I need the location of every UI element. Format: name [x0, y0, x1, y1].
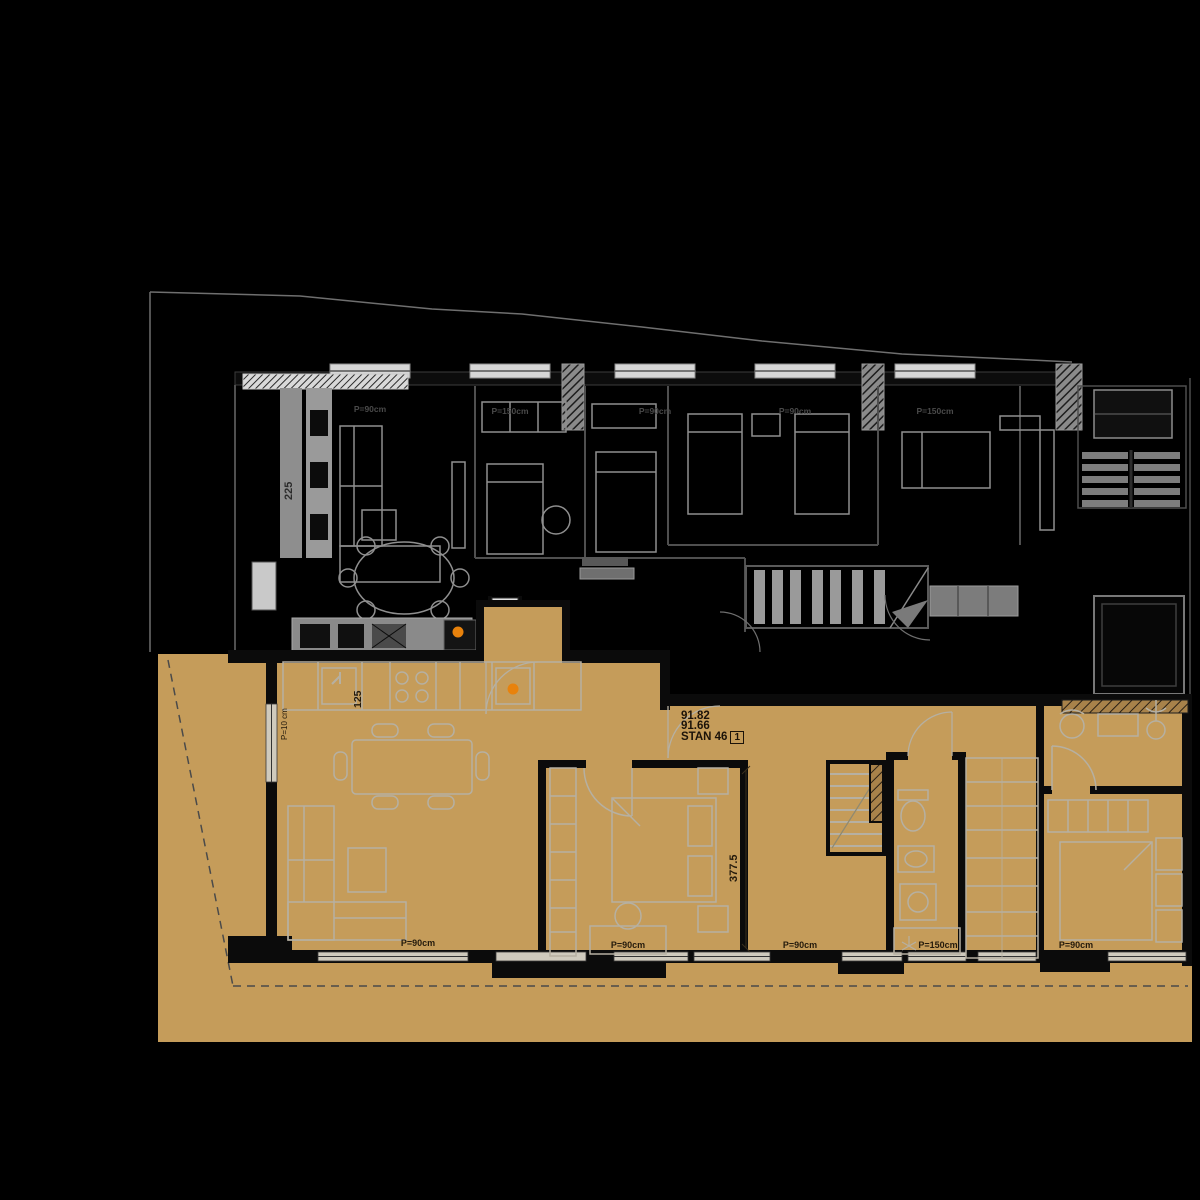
upper-living-furniture [339, 426, 469, 619]
bed [596, 452, 656, 552]
upper-bedroom-1 [482, 402, 570, 554]
unit-name: STAN 46 [681, 733, 727, 743]
dim-377: 377.5 [728, 854, 740, 882]
dining-table [354, 542, 454, 614]
window-label-top-5: P=150cm [893, 406, 977, 416]
unit-number-box: 1 [730, 731, 744, 744]
rug [542, 506, 570, 534]
appliance-dot [508, 684, 519, 695]
floor-plan-drawing [0, 0, 1200, 1200]
dim-225: 225 [283, 482, 295, 500]
closet-hatch [1062, 700, 1188, 713]
window-label-bottom-1: P=90cm [376, 938, 460, 948]
stairwell [1078, 386, 1186, 508]
nightstand [752, 414, 780, 436]
upper-unit-tag [580, 557, 634, 579]
floor-plan-canvas: 91.82 91.66 STAN 46 1 225 125 377.5 P=10… [0, 0, 1200, 1200]
window-label-bottom-5: P=90cm [1034, 940, 1118, 950]
stove-burner-dot [453, 627, 464, 638]
upper-bedroom-2 [592, 404, 656, 552]
bed [795, 414, 849, 514]
upper-counter [930, 586, 1018, 616]
elevator-shaft [1094, 596, 1184, 694]
window-label-bottom-2: P=90cm [586, 940, 670, 950]
lower-apartment [158, 600, 1192, 1042]
bed [487, 464, 543, 554]
dim-parapet-low: P=10 cm [280, 708, 289, 740]
bed [688, 414, 742, 514]
window-label-top-4: P=90cm [753, 406, 837, 416]
unit-area-2: 91.66 [681, 722, 744, 732]
window-label-bottom-3: P=90cm [758, 940, 842, 950]
upper-bedroom-4 [902, 416, 1054, 530]
upper-door-arcs [720, 595, 930, 652]
coffee-table [362, 510, 396, 540]
left-window [252, 562, 276, 610]
window-label-top-3: P=90cm [613, 406, 697, 416]
living-wall-band [280, 388, 302, 558]
upper-bedroom-3 [688, 414, 849, 514]
upper-kitchen [292, 618, 476, 654]
bed [902, 432, 990, 488]
corridor-staircase [746, 566, 928, 628]
unit-label: 91.82 91.66 STAN 46 1 [681, 712, 744, 744]
tv-bench [452, 462, 465, 548]
hatched-parapet [243, 374, 408, 389]
dim-125: 125 [352, 690, 364, 708]
window-label-top-2: P=150cm [468, 406, 552, 416]
window-label-top-1: P=90cm [328, 404, 412, 414]
window-label-bottom-4: P=150cm [896, 940, 980, 950]
